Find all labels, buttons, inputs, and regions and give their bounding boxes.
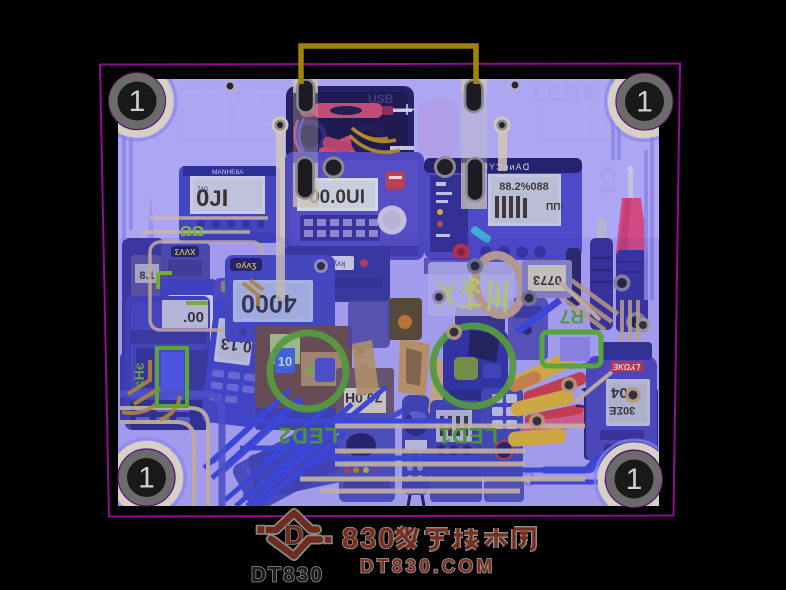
svg-text:D: D bbox=[284, 520, 304, 550]
svg-text:1: 1 bbox=[636, 86, 653, 119]
svg-text:DT830.COM: DT830.COM bbox=[360, 557, 495, 578]
svg-text:1: 1 bbox=[138, 462, 155, 495]
svg-text:1: 1 bbox=[626, 463, 643, 496]
svg-text:830: 830 bbox=[342, 523, 396, 555]
svg-text:DT830: DT830 bbox=[251, 564, 324, 587]
svg-text:1: 1 bbox=[129, 85, 146, 118]
